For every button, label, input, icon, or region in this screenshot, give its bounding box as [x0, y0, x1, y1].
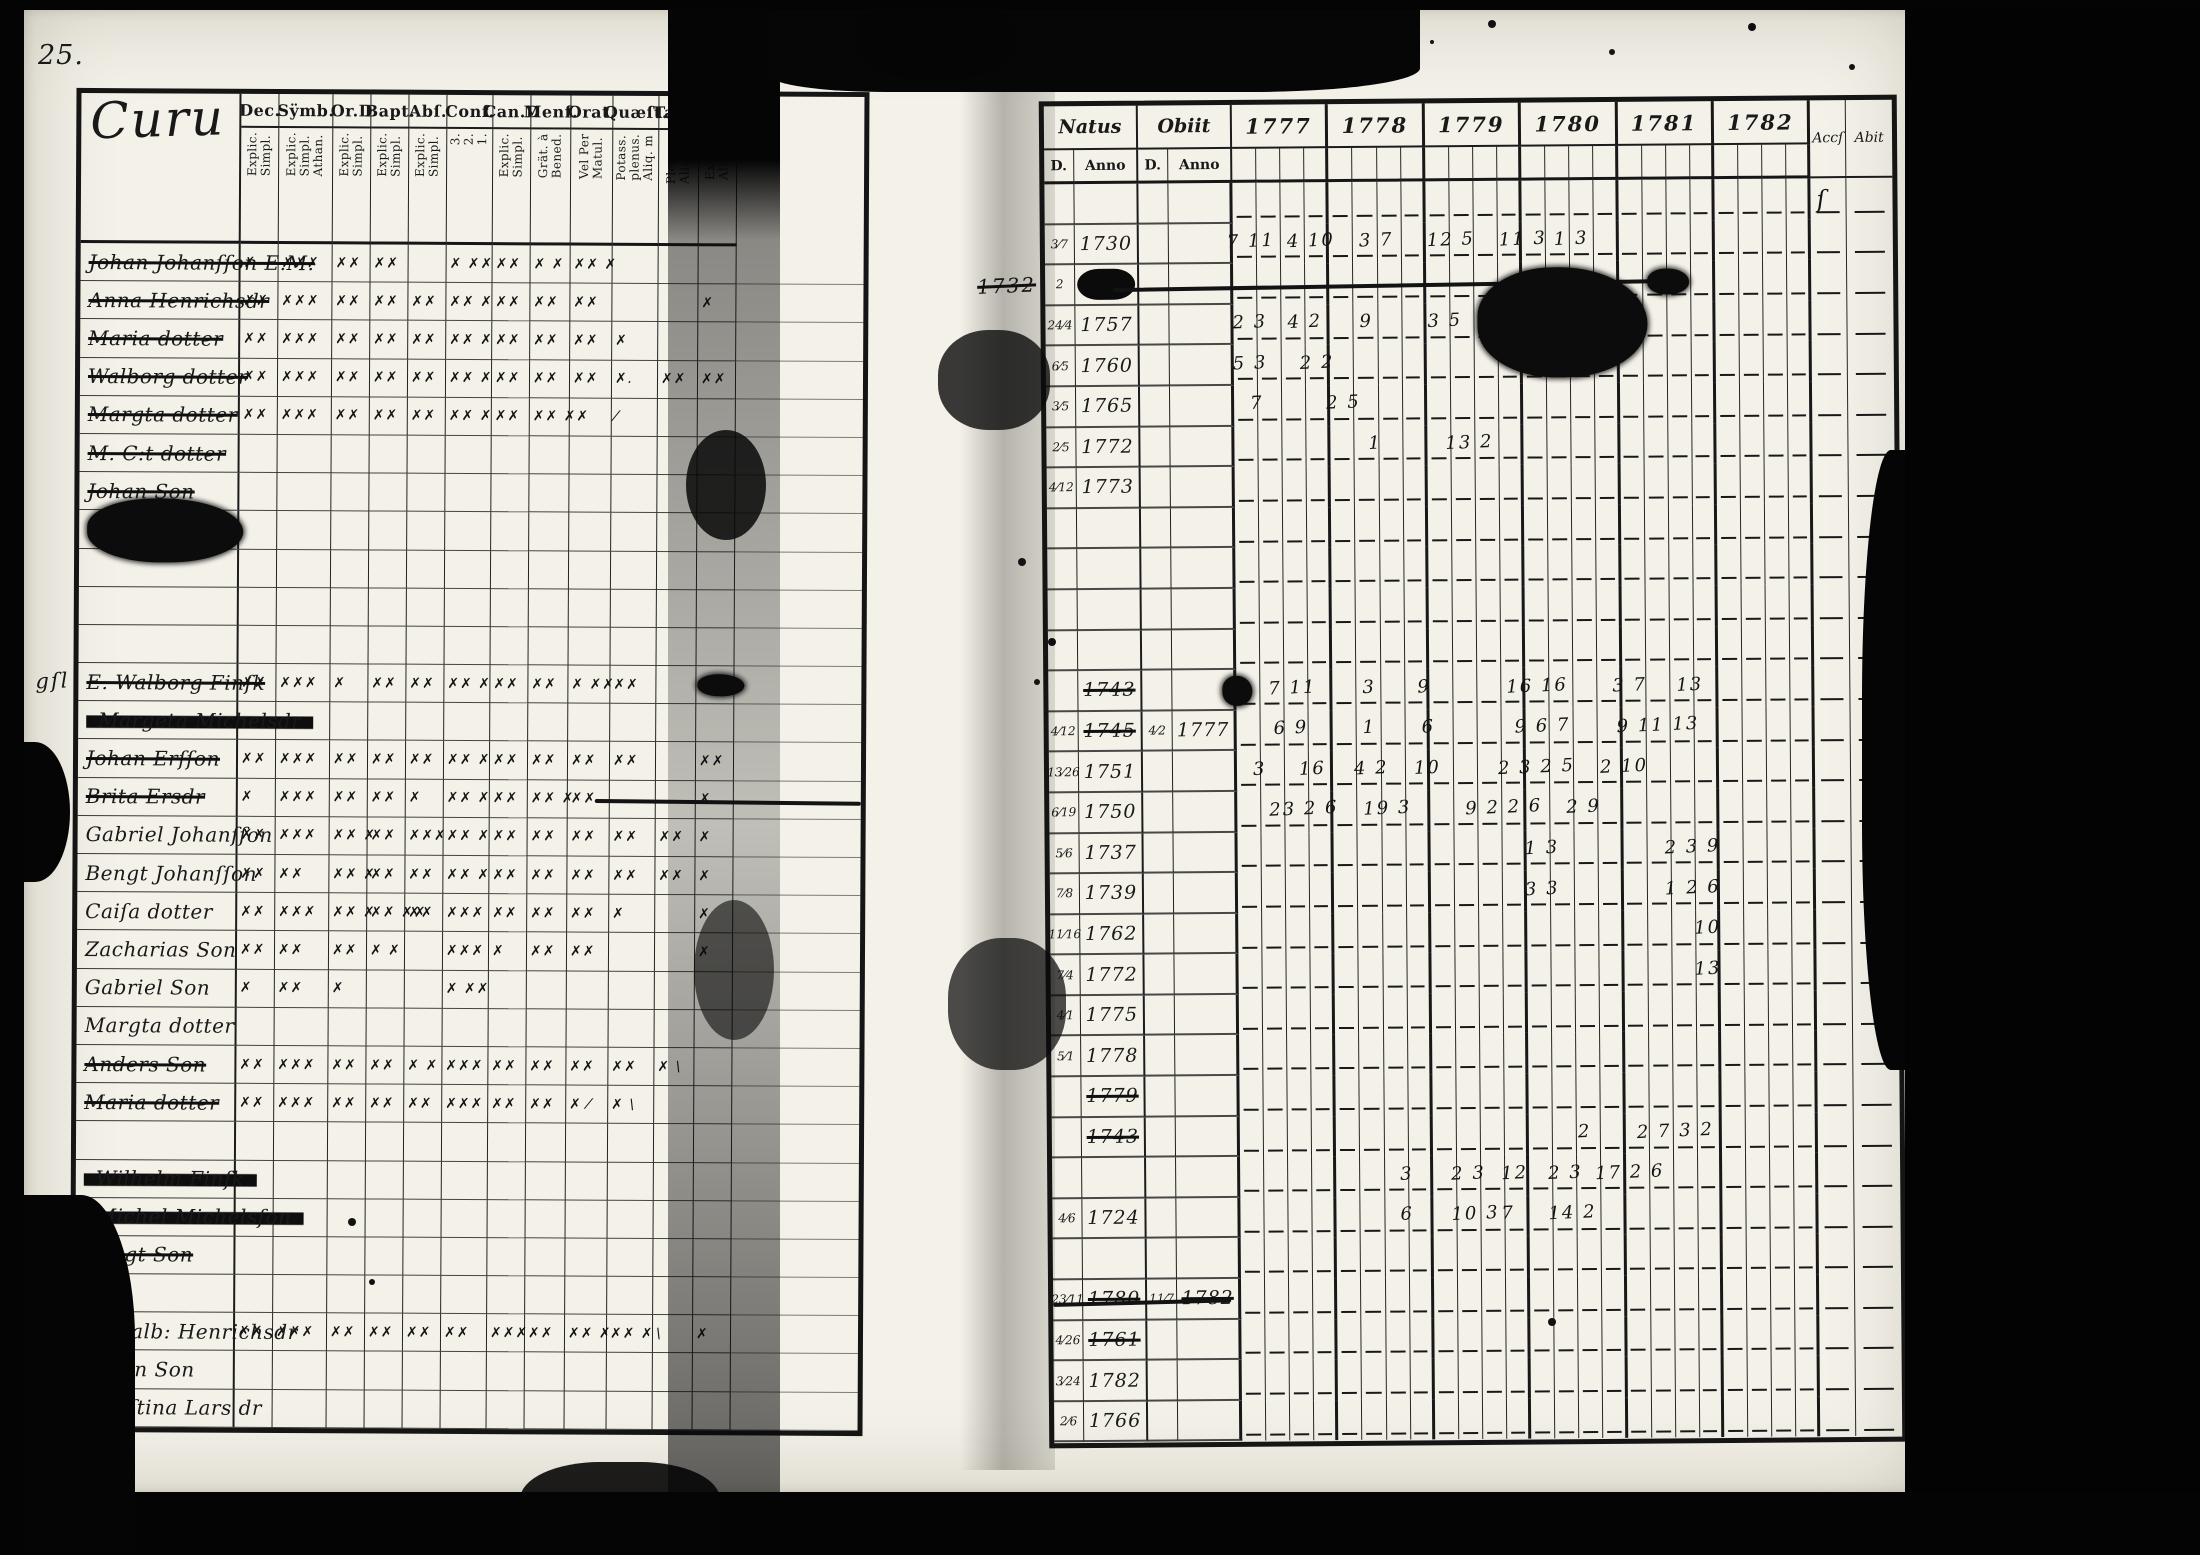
mark-cell	[237, 1008, 275, 1046]
year-cell	[1625, 1032, 1649, 1073]
year-cell	[1309, 710, 1333, 751]
year-cell	[1433, 1237, 1457, 1278]
year-cell	[1765, 544, 1789, 585]
mark-cell	[239, 473, 277, 511]
accs-cell	[1816, 868, 1852, 909]
obiit-day-cell	[1138, 183, 1168, 224]
year-cell	[1452, 546, 1476, 587]
abit-cell	[1847, 259, 1893, 300]
year-cell	[1595, 342, 1619, 383]
year-cell	[1575, 870, 1599, 911]
year-cell	[1523, 424, 1547, 465]
year-cell	[1529, 1114, 1553, 1155]
year-cell	[1739, 300, 1763, 341]
year-cell	[1554, 1195, 1578, 1236]
examination-table: Dec.Sÿmb.Or.DBapt.Abſ.Conf.Can.DMenſ.Ora…	[69, 88, 869, 1436]
year-cell	[1333, 710, 1357, 751]
year-cell	[1771, 1234, 1795, 1275]
year-cell	[1666, 179, 1690, 220]
year-cell	[1675, 1316, 1699, 1357]
accs-cell	[1818, 1071, 1854, 1112]
abit-cell	[1852, 868, 1898, 909]
year-subcolumn	[1690, 145, 1714, 179]
year-cell	[1381, 750, 1405, 791]
name-cell: Walborg dotter	[80, 358, 240, 397]
year-cell	[1550, 749, 1574, 790]
year-cell	[1289, 1319, 1313, 1360]
column-subheader-label: Plenus. Aliq. m.	[665, 134, 692, 184]
mark-cell	[697, 628, 735, 666]
mark-cell: ✗✗	[236, 1046, 274, 1084]
year-cell	[1794, 1193, 1818, 1234]
mark-cell	[611, 513, 657, 551]
year-cell	[1478, 749, 1502, 790]
column-header: L.n	[699, 96, 737, 130]
mark-cell	[527, 1009, 567, 1047]
natus-year: 1766	[1089, 1410, 1142, 1432]
year-cell	[1285, 751, 1309, 792]
mark-cell: ✗✗✗	[443, 932, 489, 970]
trailer-cell	[735, 476, 862, 515]
obiit-day-cell	[1144, 955, 1174, 996]
mark-cell: ✗✗	[406, 665, 444, 703]
name-cell: Gabriel Johanſſon	[78, 816, 238, 855]
year-cell	[1329, 263, 1353, 304]
year-cell	[1771, 1275, 1795, 1316]
year-cell	[1242, 1400, 1266, 1441]
year-cell	[1573, 586, 1597, 627]
year-cell	[1578, 1276, 1602, 1317]
mark-cell: ✗✗ ✗	[571, 246, 613, 284]
abit-cell	[1849, 502, 1895, 543]
mark-cell	[608, 1200, 654, 1238]
mark-cell	[403, 1276, 441, 1314]
accs-cell	[1816, 828, 1852, 869]
mark-cell: ✗✗	[490, 742, 528, 780]
column-subheader: Explic. Simpl.	[409, 129, 448, 245]
year-cell	[1504, 1033, 1528, 1074]
year-cell	[1645, 585, 1669, 626]
year-cell	[1724, 1397, 1748, 1438]
year-cell	[1331, 425, 1355, 466]
year-cell	[1598, 667, 1622, 708]
natus-year: 1773	[1081, 476, 1134, 498]
trailer-cell	[733, 896, 860, 935]
name-cell: Bengt Son	[75, 1236, 235, 1275]
year-cell	[1331, 466, 1355, 507]
mark-cell	[697, 552, 735, 590]
year-cell	[1383, 953, 1407, 994]
column-subheader: Explic. Simpl. Athan.	[279, 128, 334, 244]
accs-cell	[1812, 381, 1848, 422]
obiit-day-cell	[1141, 508, 1171, 549]
person-name: Gabriel Johanſſon	[86, 822, 273, 847]
year-cell	[1718, 707, 1742, 748]
natus-day-cell: 7⁄8	[1050, 874, 1080, 915]
obiit-year-cell	[1173, 751, 1237, 792]
year-cell	[1625, 1113, 1649, 1154]
year-cell	[1739, 260, 1763, 301]
year-subcolumn	[1714, 145, 1738, 179]
obiit-day-cell	[1144, 873, 1174, 914]
obiit-day-cell	[1142, 670, 1172, 711]
year-cell	[1792, 868, 1816, 909]
obiit-day-cell	[1144, 914, 1174, 955]
name-cell: Margta dotter	[80, 396, 240, 435]
year-cell	[1404, 547, 1428, 588]
obiit-year-cell	[1173, 832, 1237, 873]
year-cell	[1522, 302, 1546, 343]
year-cell	[1451, 384, 1475, 425]
mark-cell: ✗ ✗✗	[443, 970, 489, 1008]
year-cell	[1314, 1319, 1338, 1360]
mark-cell: ✗✗	[570, 322, 612, 360]
year-cell	[1646, 707, 1670, 748]
name-cell: Johan Johanſſon E.M.	[81, 243, 241, 282]
mark-cell	[407, 588, 445, 626]
mark-cell: ✗✗	[370, 359, 408, 397]
year-cell	[1667, 342, 1691, 383]
mark-cell	[565, 1391, 607, 1429]
mark-cell: ✗✗	[527, 894, 567, 932]
mark-cell	[489, 1009, 527, 1047]
mark-cell	[565, 1238, 607, 1276]
year-cell	[1671, 748, 1695, 789]
natus-year: 1782	[1088, 1369, 1141, 1391]
obiit-year-cell	[1170, 426, 1234, 467]
year-cell	[1480, 993, 1504, 1034]
mark-cell	[443, 1009, 489, 1047]
natus-day-cell: 2	[1045, 265, 1075, 306]
year-cell	[1260, 588, 1284, 629]
year-cell	[1570, 180, 1594, 221]
mark-cell: ✗✗	[332, 397, 370, 435]
year-cell	[1647, 829, 1671, 870]
mark-cell	[567, 971, 609, 1009]
year-cell	[1479, 911, 1503, 952]
mark-cell: ✗✗ ✗	[443, 856, 489, 894]
year-header: 1779	[1425, 103, 1522, 148]
mark-cell: ✗✗	[528, 818, 568, 856]
year-cell	[1555, 1317, 1579, 1358]
year-cell	[1454, 830, 1478, 871]
year-cell	[1329, 223, 1353, 264]
person-name: Gabriel Son	[85, 975, 210, 1000]
year-cell	[1716, 463, 1740, 504]
year-cell	[1356, 588, 1380, 629]
abit-cell	[1853, 949, 1899, 990]
year-cell	[1433, 1155, 1457, 1196]
year-cell	[1671, 788, 1695, 829]
year-cell	[1434, 1277, 1458, 1318]
year-cell	[1497, 181, 1521, 222]
natus-day-cell: 2⁄5	[1046, 428, 1076, 469]
year-cell	[1643, 261, 1667, 302]
year-cell	[1386, 1359, 1410, 1400]
natus-day-cell	[1053, 1240, 1083, 1281]
year-cell	[1572, 464, 1596, 505]
natus-day-cell: 3⁄7	[1045, 225, 1075, 266]
scan-artifact	[1905, 0, 2200, 1555]
obiit-day-cell	[1141, 468, 1171, 509]
mark-cell: ✗	[695, 895, 733, 933]
year-cell	[1771, 1315, 1795, 1356]
year-cell	[1699, 1275, 1723, 1316]
year-cell	[1407, 953, 1431, 994]
year-cell	[1281, 182, 1305, 223]
mark-cell: ✗✗	[332, 359, 370, 397]
year-cell	[1624, 910, 1648, 951]
year-cell	[1649, 1032, 1673, 1073]
year-cell	[1426, 303, 1450, 344]
mark-cell	[569, 551, 611, 589]
trailer-cell	[731, 1316, 858, 1355]
natus-year-cell: 1765	[1076, 387, 1140, 428]
mark-cell: ✗✗✗	[275, 893, 329, 931]
mark-cell: ✗ ✗✗	[568, 666, 610, 704]
year-cell	[1789, 503, 1813, 544]
year-cell	[1306, 385, 1330, 426]
mark-cell: ✗✗	[365, 1314, 403, 1352]
natus-year: 1750	[1084, 801, 1137, 823]
year-cell	[1432, 1034, 1456, 1075]
obiit-year-cell: 1782	[1177, 1279, 1241, 1320]
year-cell	[1572, 424, 1596, 465]
year-cell	[1651, 1357, 1675, 1398]
accs-cell	[1818, 1152, 1854, 1193]
obiit-day-cell	[1146, 1198, 1176, 1239]
year-cell	[1551, 830, 1575, 871]
year-cell	[1787, 260, 1811, 301]
abit-cell	[1850, 584, 1896, 625]
year-cell	[1361, 1278, 1385, 1319]
mark-cell: ✗✗ ✗	[330, 817, 368, 855]
year-cell	[1358, 831, 1382, 872]
mark-cell: ✗✗	[328, 1084, 366, 1122]
year-cell	[1505, 1155, 1529, 1196]
year-cell	[1329, 182, 1353, 223]
mark-cell: ✗ \	[608, 1086, 654, 1124]
mark-cell	[329, 1008, 367, 1046]
year-cell	[1691, 260, 1715, 301]
mark-cell	[696, 704, 734, 742]
mark-cell	[277, 511, 331, 549]
year-cell	[1576, 1032, 1600, 1073]
year-cell	[1789, 544, 1813, 585]
year-cell	[1313, 1197, 1337, 1238]
year-cell	[1310, 872, 1334, 913]
mark-cell: ✗✗	[408, 321, 446, 359]
accs-cell	[1817, 1030, 1853, 1071]
year-cell	[1787, 300, 1811, 341]
mark-cell	[278, 435, 332, 473]
mark-cell: ✗✗	[368, 817, 406, 855]
year-cell	[1765, 503, 1789, 544]
year-cell	[1451, 465, 1475, 506]
mark-cell	[366, 1123, 404, 1161]
year-cell	[1788, 381, 1812, 422]
year-subcolumn	[1401, 147, 1425, 181]
name-cell: Maria dotter	[80, 319, 240, 358]
year-cell	[1714, 179, 1738, 220]
year-cell	[1747, 1275, 1771, 1316]
year-cell	[1531, 1398, 1555, 1439]
year-cell	[1669, 545, 1693, 586]
mark-cell	[659, 246, 699, 284]
person-name: Michel Michelsſon	[84, 1204, 304, 1229]
year-cell	[1334, 791, 1358, 832]
year-cell	[1723, 1275, 1747, 1316]
obiit-day-cell	[1147, 1239, 1177, 1280]
year-cell	[1793, 950, 1817, 991]
year-cell	[1430, 790, 1454, 831]
year-cell	[1652, 1397, 1676, 1438]
abit-cell	[1852, 908, 1898, 949]
year-cell	[1454, 790, 1478, 831]
obiit-year-cell	[1175, 1076, 1239, 1117]
mark-cell: ✗✗	[237, 931, 275, 969]
year-cell	[1720, 950, 1744, 991]
year-cell	[1265, 1278, 1289, 1319]
year-cell	[1260, 629, 1284, 670]
year-cell	[1450, 222, 1474, 263]
mark-cell: ✗✗ ✗	[528, 780, 568, 818]
accs-cell	[1813, 503, 1849, 544]
year-cell	[1236, 629, 1260, 670]
year-cell	[1594, 220, 1618, 261]
year-cell	[1578, 1235, 1602, 1276]
year-cell	[1258, 345, 1282, 386]
year-cell	[1571, 342, 1595, 383]
abit-cell	[1847, 218, 1893, 259]
mark-cell	[327, 1237, 365, 1275]
year-cell	[1288, 1157, 1312, 1198]
year-cell	[1669, 585, 1693, 626]
year-cell	[1377, 222, 1401, 263]
year-subcolumn	[1328, 148, 1352, 182]
natus-day-cell: 4⁄12	[1049, 712, 1079, 753]
mark-cell	[695, 1010, 733, 1048]
year-cell	[1453, 668, 1477, 709]
year-cell	[1259, 507, 1283, 548]
accs-cell	[1817, 949, 1853, 990]
obiit-year: 1782	[1181, 1287, 1234, 1309]
obiit-day-cell	[1145, 995, 1175, 1036]
year-cell	[1336, 1116, 1360, 1157]
natus-year: 1765	[1081, 395, 1134, 417]
natus-day-cell: 5⁄1	[1051, 1037, 1081, 1078]
mark-cell	[369, 474, 407, 512]
year-cell	[1263, 994, 1287, 1035]
obiit-year-cell	[1169, 223, 1233, 264]
accs-cell	[1818, 1112, 1854, 1153]
year-cell	[1353, 182, 1377, 223]
year-cell	[1597, 626, 1621, 667]
year-cell	[1286, 872, 1310, 913]
natus-year: 1739	[1085, 882, 1138, 904]
year-cell	[1501, 668, 1525, 709]
year-cell	[1748, 1396, 1772, 1437]
mark-cell: ✗✗	[330, 741, 368, 779]
year-cell	[1766, 666, 1790, 707]
mark-cell	[567, 1009, 609, 1047]
year-cell	[1290, 1359, 1314, 1400]
year-cell	[1623, 789, 1647, 830]
mark-cell	[488, 1200, 526, 1238]
year-cell	[1667, 301, 1691, 342]
obiit-year-cell	[1175, 995, 1239, 1036]
year-cell	[1313, 1238, 1337, 1279]
mark-cell	[441, 1352, 487, 1390]
year-cell	[1526, 708, 1550, 749]
year-cell	[1434, 1318, 1458, 1359]
year-cell	[1505, 1114, 1529, 1155]
year-cell	[1358, 872, 1382, 913]
year-cell	[1283, 466, 1307, 507]
abit-cell	[1851, 787, 1897, 828]
mark-cell: ✗✗	[329, 932, 367, 970]
year-cell	[1456, 1033, 1480, 1074]
year-cell	[1621, 586, 1645, 627]
year-cell	[1234, 386, 1258, 427]
natus-year: 1737	[1084, 841, 1137, 863]
obiit-year-cell	[1170, 386, 1234, 427]
mark-cell: ✗✗	[488, 1085, 526, 1123]
mark-cell: ✗✗	[568, 818, 610, 856]
year-cell	[1457, 1155, 1481, 1196]
year-cell	[1305, 223, 1329, 264]
year-cell	[1500, 546, 1524, 587]
year-cell	[1793, 1031, 1817, 1072]
name-cell: M. C:t dotter	[80, 434, 240, 473]
person-name: Chriſtina Lars dr	[83, 1395, 263, 1420]
mark-cell: ✗ ✗✗	[447, 245, 493, 283]
mark-cell	[367, 1008, 405, 1046]
year-cell	[1308, 629, 1332, 670]
year-cell	[1794, 1071, 1818, 1112]
year-cell	[1354, 304, 1378, 345]
year-cell	[1498, 221, 1522, 262]
mark-cell	[565, 1277, 607, 1315]
person-name: Johan Erſſon	[86, 746, 220, 771]
year-cell	[1264, 1197, 1288, 1238]
natus-day-cell: 4⁄6	[1052, 1199, 1082, 1240]
mark-cell: ✗✗ ✗	[446, 359, 492, 397]
year-cell	[1548, 505, 1572, 546]
column-subheader-label: Explic. Simpl.	[246, 132, 273, 176]
natus-year-cell: 1745	[1079, 711, 1143, 752]
year-cell	[1362, 1318, 1386, 1359]
year-cell	[1385, 1156, 1409, 1197]
year-cell	[1473, 181, 1497, 222]
year-cell	[1305, 182, 1329, 223]
mark-cell: ✗✗	[275, 931, 329, 969]
year-cell	[1360, 1156, 1384, 1197]
mark-cell	[491, 589, 529, 627]
year-cell	[1306, 304, 1330, 345]
mark-cell	[528, 704, 568, 742]
year-cell	[1286, 913, 1310, 954]
mark-cell	[405, 1008, 443, 1046]
year-cell	[1647, 788, 1671, 829]
year-cell	[1796, 1356, 1820, 1397]
person-name: Zacharias Son	[85, 937, 237, 962]
mark-cell	[492, 436, 530, 474]
column-subheader-label: Explic. Simpl.	[376, 133, 403, 177]
abit-cell	[1847, 178, 1893, 219]
person-name: Johan Son	[87, 479, 194, 504]
year-cell	[1721, 1072, 1745, 1113]
